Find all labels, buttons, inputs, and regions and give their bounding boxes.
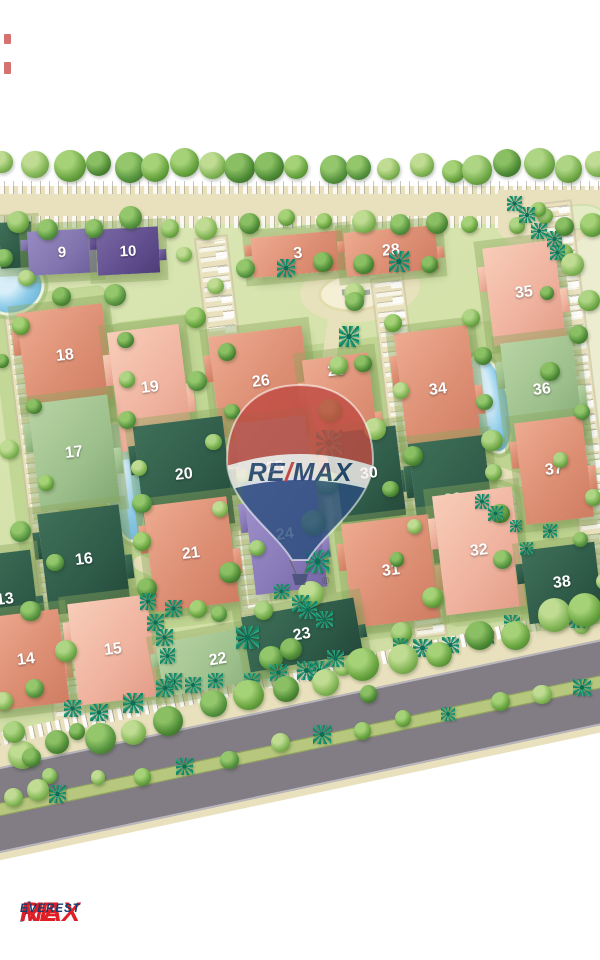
tree bbox=[377, 158, 399, 180]
tree bbox=[284, 155, 308, 179]
balloon-basket-icon bbox=[292, 574, 308, 585]
tree bbox=[410, 153, 433, 176]
registered-mark: ® bbox=[322, 576, 330, 587]
tree bbox=[442, 160, 465, 183]
tree bbox=[141, 153, 170, 182]
edge-mark bbox=[4, 34, 11, 44]
tree bbox=[86, 151, 111, 176]
building-3[interactable]: 3 bbox=[250, 230, 345, 278]
tree bbox=[0, 151, 13, 173]
tree bbox=[170, 148, 199, 177]
site-plan: 9 10 3 28 35 18 19 26 29 34 36 17 20 25 … bbox=[0, 0, 600, 960]
remax-balloon-watermark: RE/MAX ® bbox=[220, 382, 380, 588]
tree bbox=[524, 148, 555, 179]
tree bbox=[493, 149, 521, 177]
building-37[interactable]: 37 bbox=[514, 415, 594, 525]
tree bbox=[199, 152, 226, 179]
building-35[interactable]: 35 bbox=[482, 240, 565, 346]
building-15[interactable]: 15 bbox=[67, 595, 159, 706]
tree bbox=[54, 150, 86, 182]
building-32[interactable]: 32 bbox=[432, 487, 526, 616]
tree bbox=[21, 151, 49, 179]
building-10[interactable]: 10 bbox=[96, 226, 160, 275]
building-38[interactable]: 38 bbox=[521, 542, 600, 624]
building-14[interactable]: 14 bbox=[0, 609, 69, 712]
building-18[interactable]: 18 bbox=[16, 303, 113, 409]
tree bbox=[346, 155, 371, 180]
svg-text:RE/MAX: RE/MAX bbox=[248, 457, 353, 487]
tree bbox=[115, 152, 146, 183]
background bbox=[0, 900, 600, 960]
building-28[interactable]: 28 bbox=[343, 225, 438, 277]
tree bbox=[585, 151, 600, 177]
building-17[interactable]: 17 bbox=[28, 395, 121, 512]
tree bbox=[320, 155, 348, 183]
tree bbox=[224, 153, 255, 184]
building-9[interactable]: 9 bbox=[27, 228, 97, 275]
edge-mark bbox=[4, 62, 11, 74]
tree bbox=[555, 155, 583, 183]
tree bbox=[254, 152, 284, 182]
balloon-icon: RE/MAX ® bbox=[220, 382, 380, 588]
